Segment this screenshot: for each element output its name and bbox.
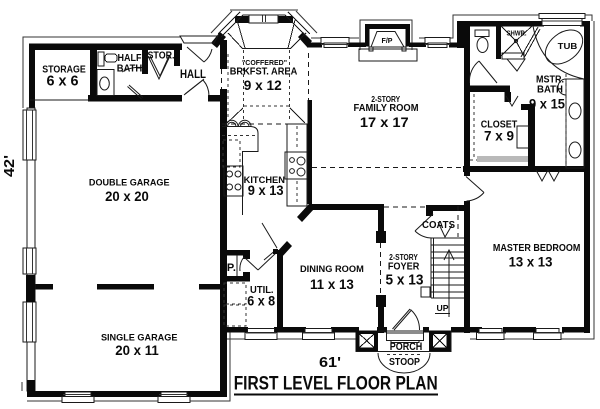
svg-text:13 x 13: 13 x 13	[509, 254, 553, 270]
svg-text:DINING ROOM: DINING ROOM	[300, 264, 364, 275]
svg-text:7 x 9: 7 x 9	[484, 128, 514, 144]
svg-text:17 x 17: 17 x 17	[360, 114, 409, 130]
svg-text:HALL: HALL	[180, 69, 206, 81]
svg-text:61': 61'	[319, 354, 341, 371]
svg-text:FAMILY ROOM: FAMILY ROOM	[354, 103, 419, 114]
svg-text:STOR.: STOR.	[148, 50, 175, 62]
svg-text:BATH: BATH	[117, 63, 143, 75]
svg-text:FIRST LEVEL FLOOR PLAN: FIRST LEVEL FLOOR PLAN	[234, 374, 438, 395]
svg-text:BATH: BATH	[537, 85, 563, 96]
svg-text:5 x 13: 5 x 13	[386, 273, 424, 289]
svg-text:DOUBLE GARAGE: DOUBLE GARAGE	[89, 178, 170, 189]
svg-text:BRKFST. AREA: BRKFST. AREA	[230, 67, 298, 78]
svg-text:9 x 12: 9 x 12	[244, 77, 282, 93]
svg-text:FOYER: FOYER	[388, 262, 420, 273]
svg-text:UP: UP	[437, 303, 449, 313]
svg-text:SHWR.: SHWR.	[507, 31, 527, 38]
svg-text:6 x 8: 6 x 8	[247, 293, 275, 309]
svg-text:20 x 20: 20 x 20	[105, 188, 149, 204]
svg-text:11 x 13: 11 x 13	[310, 276, 354, 292]
svg-text:6 x 6: 6 x 6	[47, 74, 79, 90]
svg-text:MASTER BEDROOM: MASTER BEDROOM	[493, 243, 581, 254]
svg-text:9 x 15: 9 x 15	[529, 97, 565, 112]
svg-text:20 x 11: 20 x 11	[115, 342, 159, 358]
svg-text:9 x 13: 9 x 13	[248, 183, 284, 198]
svg-text:COATS: COATS	[422, 219, 455, 231]
svg-text:P.: P.	[227, 262, 236, 274]
svg-text:F/P: F/P	[382, 38, 393, 45]
svg-text:42': 42'	[1, 155, 18, 177]
svg-text:PORCH: PORCH	[390, 341, 423, 353]
svg-text:TUB: TUB	[558, 42, 578, 51]
svg-text:STOOP: STOOP	[389, 356, 420, 368]
